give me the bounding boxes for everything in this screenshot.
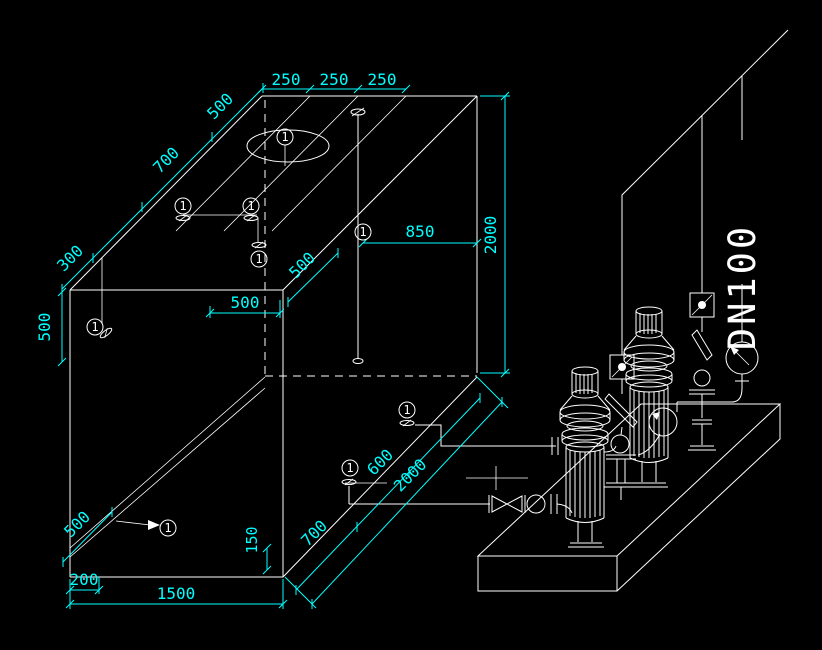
callout-number: 1 [164,521,171,535]
callout-number: 1 [255,252,262,266]
tank-outline [70,96,477,577]
cad-viewport: 250 250 250 500 700 300 500 500 500 [0,0,822,650]
suction-line-upper [415,425,556,446]
centerline-cross [466,466,528,490]
pipe-outlet-icon [353,359,363,364]
flexible-joint-icon [611,435,629,453]
dim-text: 500 [35,313,54,342]
dim-height-2000: 2000 [480,92,510,377]
base-slab [478,404,780,591]
callout-manhole: 1 [277,129,293,145]
dim-top-left-chain: 500 700 300 [53,83,263,294]
callout-front-nozzle: 1 [87,319,103,335]
tank-visible-edges [70,96,477,577]
callout-drain: 1 [116,520,176,536]
callout-top-nozzle-left: 1 [175,198,191,214]
top-nozzle-link-line [102,215,387,483]
dim-base-200-1500: 200 1500 [66,570,287,609]
dim-top-chain: 250 250 250 [258,70,410,93]
flange-icon [400,420,414,426]
pipe-flange-pair [551,494,557,514]
dim-front-500: 500 [206,293,284,318]
dim-text: 500 [231,293,260,312]
suction-line-lower [349,486,490,504]
callout-number: 1 [346,461,353,475]
callouts: 1 1 1 1 1 1 1 1 1 [87,129,415,536]
dim-850: 850 [359,222,481,247]
callout-outlet-upper: 1 [399,402,415,418]
dim-text: 250 [320,70,349,89]
dim-text: 1500 [157,584,196,603]
check-valve-icon [692,330,712,360]
dim-bottom-chain: 700 600 2000 [285,377,508,609]
dim-plan-diag-500: 500 [285,248,338,307]
tank-hidden-edges [265,100,477,376]
dim-text: 300 [53,241,87,275]
callout-top-nozzle-right: 1 [243,198,259,214]
dim-text: 200 [70,570,99,589]
flexible-joint-icon [649,408,677,436]
dim-text: 700 [149,143,183,177]
callout-number: 1 [91,320,98,334]
pipe-size-label: DN100 [721,224,764,350]
flange-icon [252,242,266,248]
cad-drawing-canvas: 250 250 250 500 700 300 500 500 500 [0,0,822,650]
dim-text: 600 [363,445,397,479]
gate-valve-icon [489,495,525,513]
dim-150: 150 [243,526,271,574]
discharge-header [638,402,734,455]
instrument-box-icon [610,355,634,379]
callout-number: 1 [359,225,366,239]
callout-number: 1 [403,403,410,417]
flexible-joint-icon [527,495,545,513]
flange-icon [244,215,258,221]
dim-text: 2000 [481,216,500,255]
dim-text: 700 [297,516,331,550]
leader-arrowhead-icon [148,520,160,530]
callout-number: 1 [247,199,254,213]
dim-text: 250 [368,70,397,89]
flange-icon [176,215,190,221]
dim-text: 250 [272,70,301,89]
discharge-riser-rear [688,115,716,450]
callout-outlet-lower: 1 [342,460,358,476]
dim-left-height: 500 [35,288,66,366]
dim-text: 500 [203,89,237,123]
pump-rear [624,307,674,487]
dimensions: 250 250 250 500 700 300 500 500 500 [35,70,510,609]
dim-drain-500: 500 [60,507,112,567]
callout-inner-pipe: 1 [355,224,371,240]
flexible-joint-icon [694,370,710,386]
callout-number: 1 [179,199,186,213]
pump-front [560,367,610,547]
dim-text: 850 [406,222,435,241]
instrument-box-icon [690,293,714,317]
flange-icon [342,479,356,485]
callout-number: 1 [281,130,288,144]
dim-text: 150 [243,526,261,553]
